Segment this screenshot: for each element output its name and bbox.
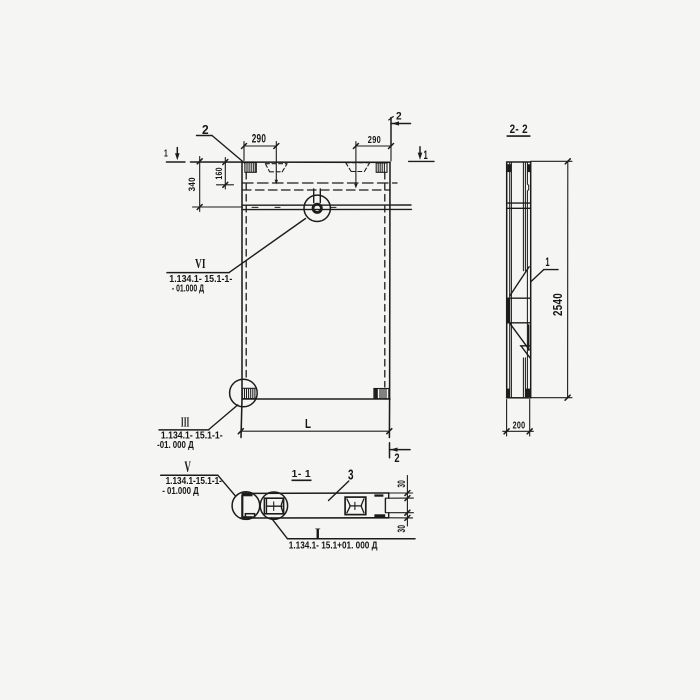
svg-text:1: 1 (164, 148, 168, 159)
svg-text:3: 3 (348, 466, 354, 483)
svg-text:III: III (181, 416, 190, 431)
svg-text:2: 2 (394, 451, 400, 465)
svg-text:1- 1: 1- 1 (292, 469, 311, 480)
svg-text:- 01.000 Д: - 01.000 Д (162, 486, 199, 497)
svg-text:1.134.1- 15.1+01. 000 Д: 1.134.1- 15.1+01. 000 Д (289, 540, 378, 551)
svg-text:-01. 000 Д: -01. 000 Д (157, 440, 194, 451)
svg-text:1: 1 (424, 150, 429, 162)
svg-text:340: 340 (187, 177, 198, 191)
svg-text:- 01.000 Д: - 01.000 Д (172, 284, 204, 295)
svg-text:2: 2 (396, 110, 402, 122)
svg-text:2: 2 (202, 122, 209, 137)
svg-text:2- 2: 2- 2 (510, 122, 528, 136)
svg-text:290: 290 (252, 133, 267, 145)
svg-text:30: 30 (396, 480, 408, 488)
svg-text:2540: 2540 (550, 293, 565, 316)
svg-text:1: 1 (545, 255, 550, 269)
svg-text:290: 290 (368, 134, 381, 146)
svg-text:160: 160 (214, 167, 224, 180)
svg-text:L: L (305, 416, 311, 431)
svg-text:30: 30 (396, 525, 408, 533)
svg-text:VI: VI (195, 257, 206, 272)
svg-text:200: 200 (513, 420, 526, 432)
svg-text:V: V (184, 459, 191, 476)
